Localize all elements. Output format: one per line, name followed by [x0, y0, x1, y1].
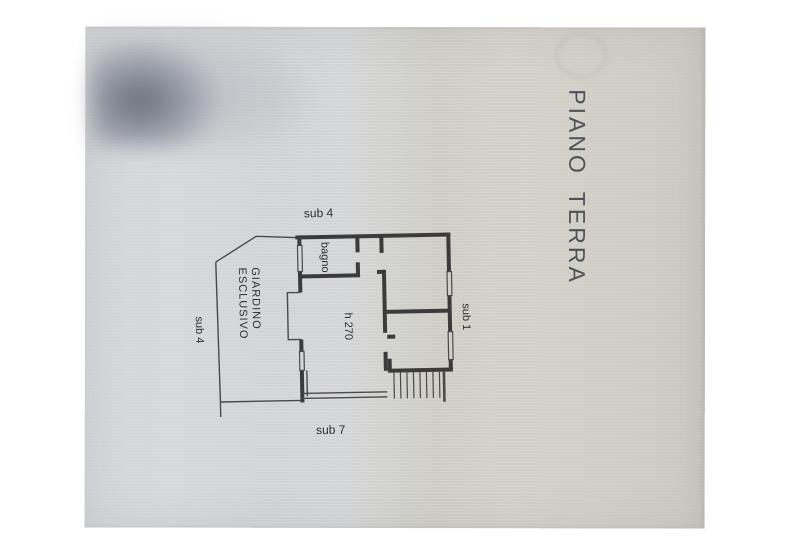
redaction-smudge: [90, 38, 220, 146]
staircase: [394, 372, 445, 403]
paper-sheet: PIANO TERRA: [85, 26, 706, 528]
label-sub7-bottom: sub 7: [316, 424, 346, 438]
document-photo: { "document": { "title": "PIANO TERRA", …: [0, 0, 800, 550]
floor-plan-drawing: [172, 189, 487, 455]
label-sub4-left: sub 4: [192, 316, 206, 343]
stamp-ghost: [555, 32, 607, 78]
terrace-lines: [302, 369, 388, 399]
label-garden: GIARDINOESCLUSIVO: [235, 267, 262, 339]
page-title-piano-terra: PIANO TERRA: [563, 89, 590, 304]
label-garden-line2: ESCLUSIVO: [235, 267, 249, 339]
label-garden-line1: GIARDINO: [248, 267, 262, 339]
label-room-height: h 270: [341, 312, 355, 340]
label-sub4-top: sub 4: [304, 207, 334, 221]
bay-outline: [287, 292, 301, 339]
label-sub1-right: sub 1: [459, 303, 473, 330]
floor-plan: sub 4 sub 7 sub 4 sub 1 bagno h 270 GIAR…: [172, 189, 487, 455]
label-room-bagno: bagno: [317, 242, 331, 273]
